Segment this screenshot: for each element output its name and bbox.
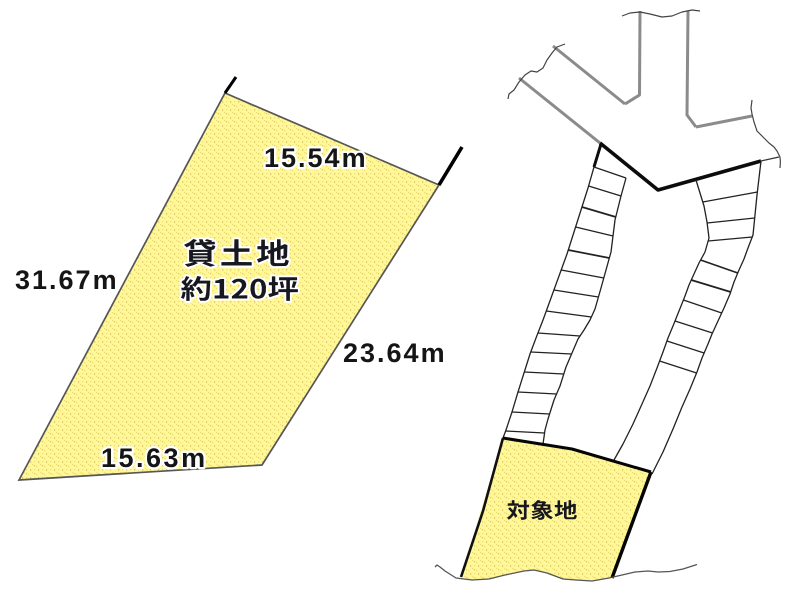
svg-text:15.54m: 15.54m (264, 143, 368, 173)
svg-text:31.67m: 31.67m (15, 265, 119, 295)
svg-text:23.64m: 23.64m (343, 338, 447, 368)
svg-text:15.63m: 15.63m (101, 443, 208, 473)
